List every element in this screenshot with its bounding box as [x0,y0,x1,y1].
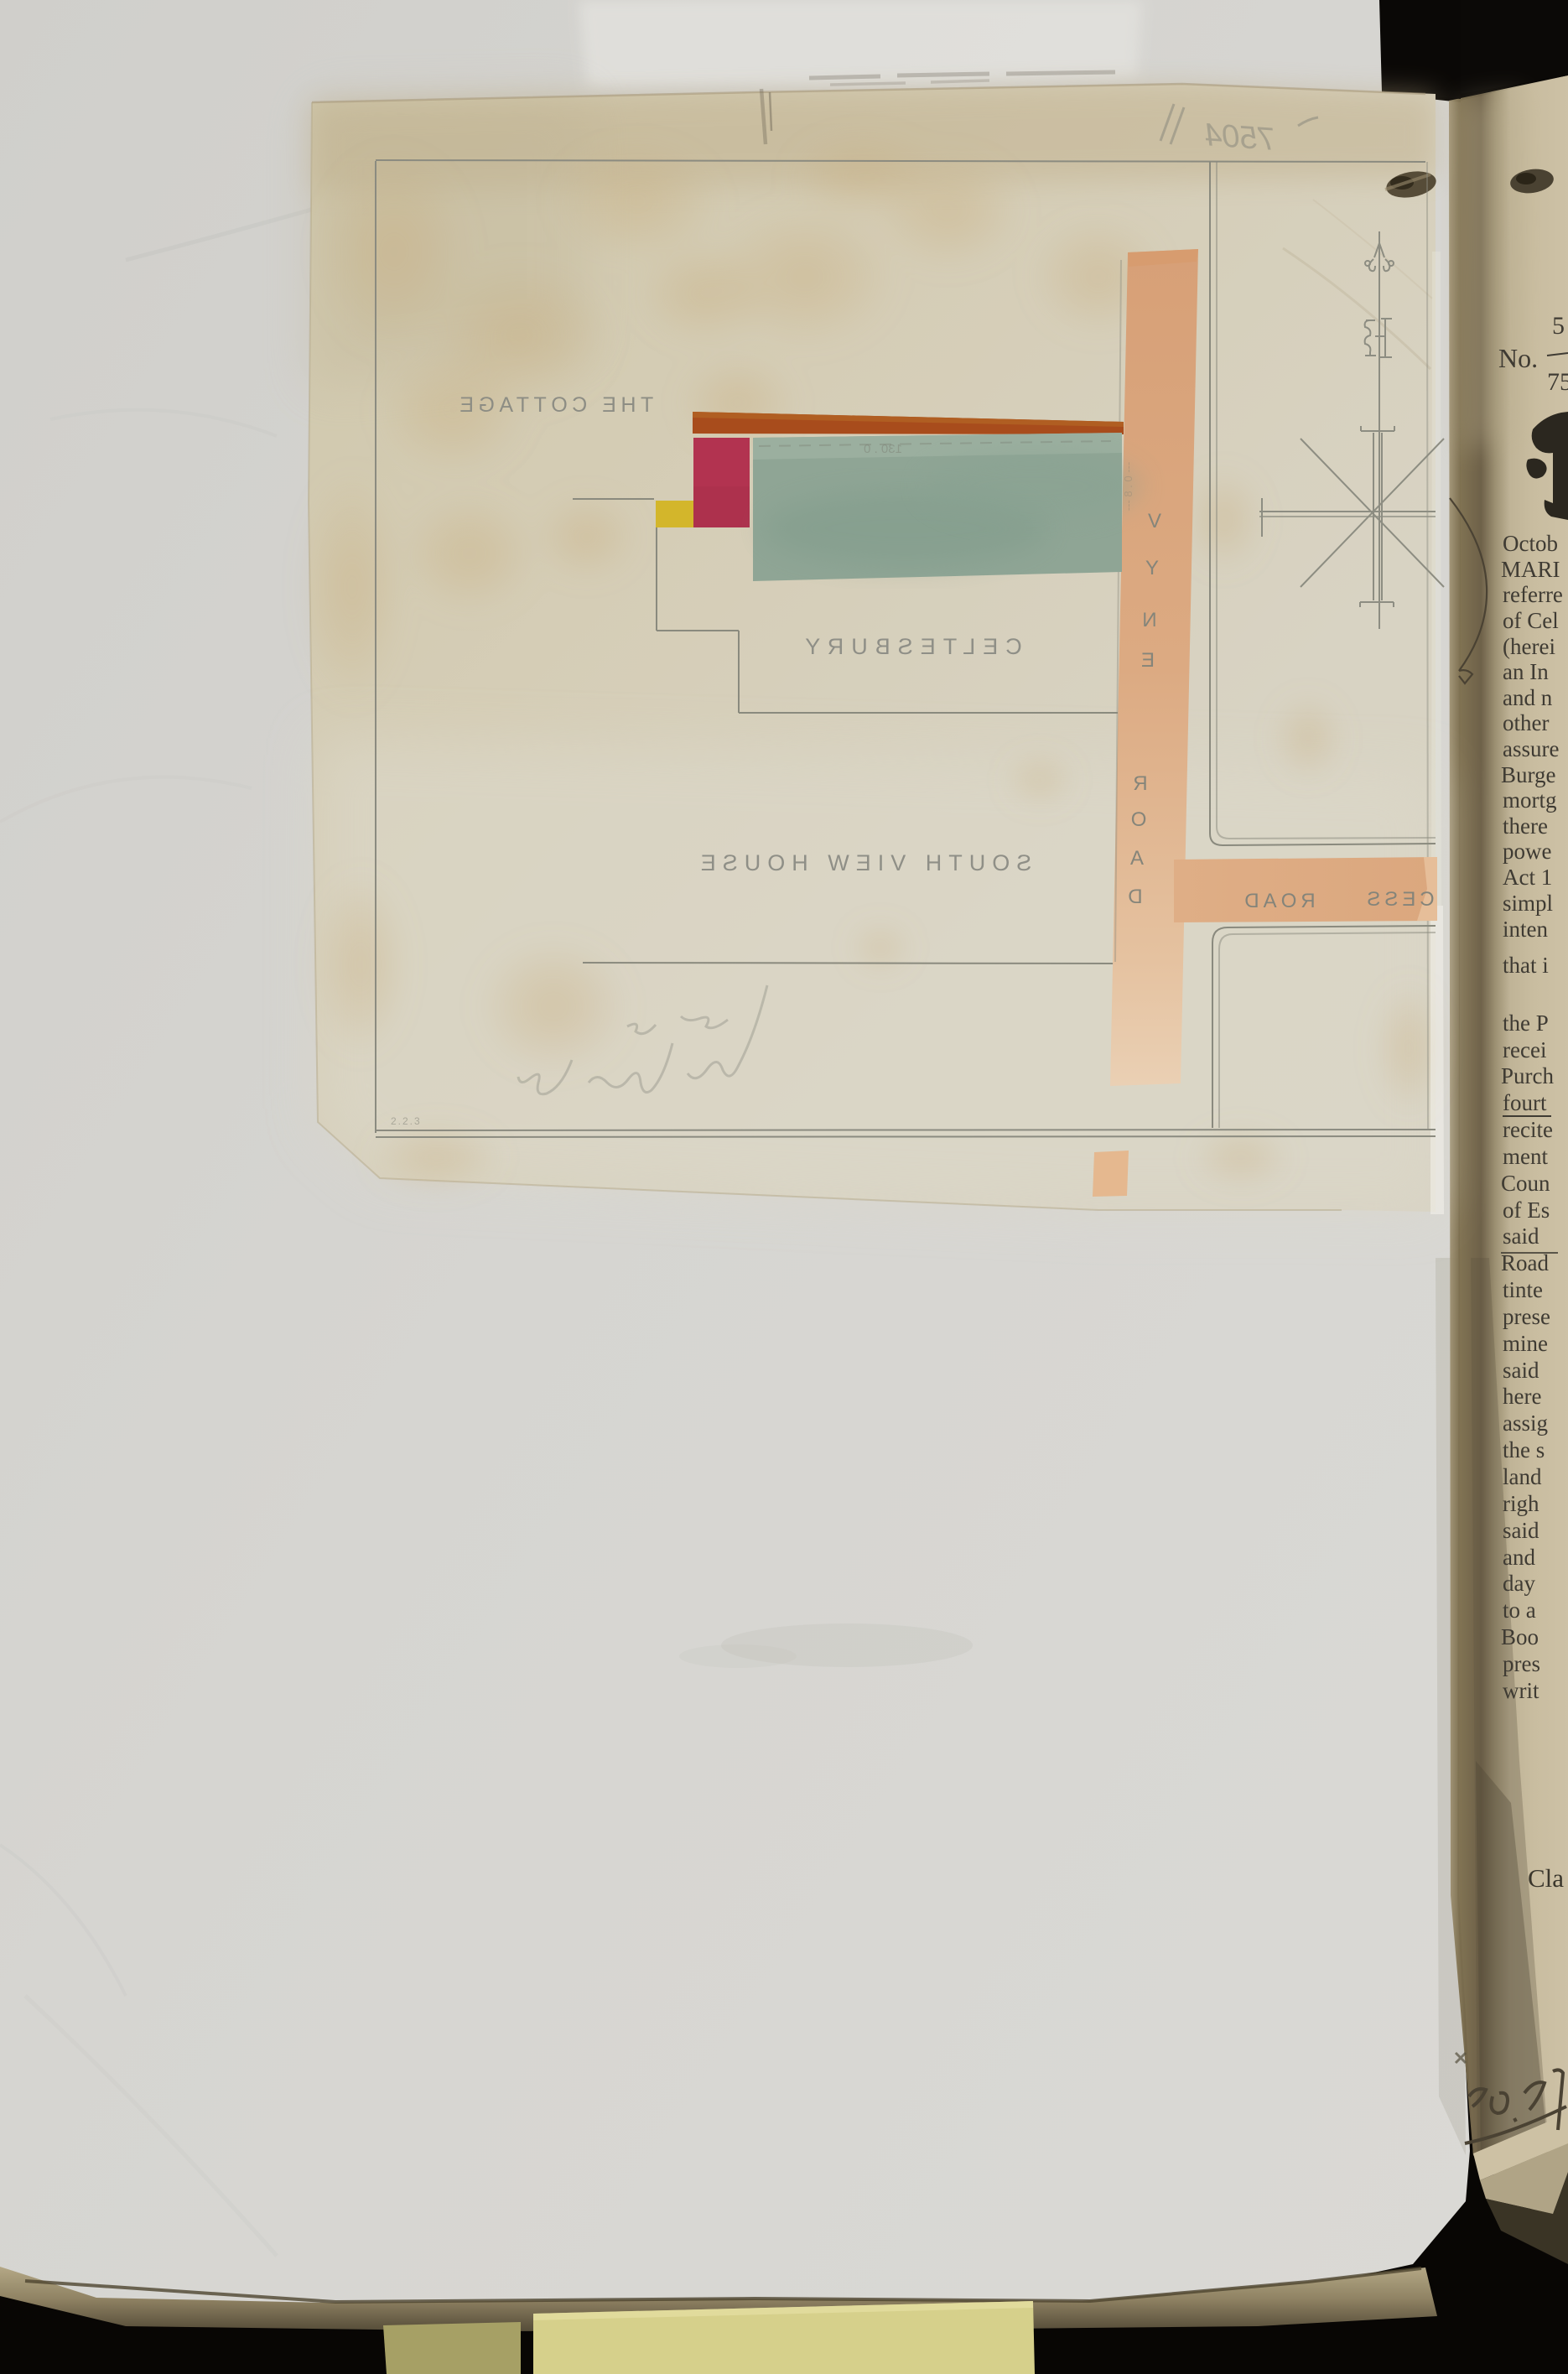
svg-text:an In: an In [1503,659,1549,684]
svg-text:O: O [1131,808,1147,831]
svg-text:(herei: (herei [1503,634,1555,659]
svg-text:assig: assig [1503,1410,1548,1436]
svg-text:CESS: CESS [1363,888,1434,911]
svg-text:Coun: Coun [1501,1171,1550,1196]
svg-text:Boo: Boo [1501,1624,1539,1649]
svg-text:2.2.3: 2.2.3 [391,1115,422,1127]
svg-text:tinte: tinte [1503,1277,1543,1302]
svg-text:No.: No. [1498,343,1538,373]
svg-text:inten: inten [1503,917,1548,942]
svg-text:simpl: simpl [1503,891,1553,916]
svg-text:mortg: mortg [1503,787,1557,813]
svg-text:5: 5 [1552,312,1565,340]
svg-text:writ: writ [1503,1678,1539,1703]
svg-text:ment: ment [1503,1144,1548,1169]
svg-text:recei: recei [1503,1037,1546,1062]
svg-text:of Cel: of Cel [1503,608,1559,633]
svg-text:Cla: Cla [1528,1863,1564,1893]
svg-text:Purch: Purch [1501,1063,1554,1088]
svg-text:pres: pres [1503,1651,1540,1676]
svg-text:there: there [1503,813,1548,839]
svg-text:THE COTTAGE: THE COTTAGE [455,393,653,417]
svg-text:MARI: MARI [1501,557,1560,582]
svg-text:of Es: of Es [1503,1197,1550,1223]
svg-text:day: day [1503,1571,1535,1596]
svg-text:the s: the s [1503,1437,1545,1462]
svg-text:CELTESBURY: CELTESBURY [797,634,1022,659]
svg-text:righ: righ [1503,1491,1539,1516]
svg-text:--- 0 . 8 ---: --- 0 . 8 --- [1122,462,1134,512]
svg-text:N: N [1142,609,1156,631]
svg-text:said: said [1503,1518,1539,1543]
svg-text:Act 1: Act 1 [1503,865,1552,890]
svg-text:said: said [1503,1223,1539,1249]
svg-text:E: E [1141,649,1155,672]
svg-text:ROAD: ROAD [1240,890,1315,912]
svg-text:other: other [1503,710,1549,735]
svg-text:Burge: Burge [1501,762,1556,787]
svg-text:Octob: Octob [1503,531,1558,556]
svg-text:fourt: fourt [1503,1090,1547,1115]
svg-text:and: and [1503,1545,1535,1570]
svg-text:and n: and n [1503,685,1553,710]
svg-text:that i: that i [1503,953,1549,978]
svg-text:mine: mine [1503,1331,1548,1356]
svg-text:referre: referre [1503,582,1563,607]
svg-text:Road: Road [1501,1250,1549,1275]
svg-text:130 . 0: 130 . 0 [864,442,902,456]
svg-text:7504: 7504 [1203,117,1276,158]
svg-text:assure: assure [1503,736,1559,761]
svg-text:A: A [1130,847,1144,870]
svg-text:D: D [1128,886,1142,908]
svg-text:prese: prese [1503,1304,1550,1329]
svg-text:Y: Y [1145,557,1159,579]
svg-text:recite: recite [1503,1117,1553,1142]
svg-text:75: 75 [1547,368,1568,396]
svg-text:powe: powe [1503,839,1551,864]
svg-text:the P: the P [1503,1010,1549,1036]
svg-text:said: said [1503,1358,1539,1383]
svg-text:here: here [1503,1384,1541,1409]
svg-text:land: land [1503,1464,1542,1489]
svg-text:SOUTH VIEW HOUSE: SOUTH VIEW HOUSE [694,850,1032,875]
svg-text:V: V [1148,510,1161,532]
svg-text:to a: to a [1503,1597,1536,1623]
svg-text:R: R [1133,772,1147,795]
